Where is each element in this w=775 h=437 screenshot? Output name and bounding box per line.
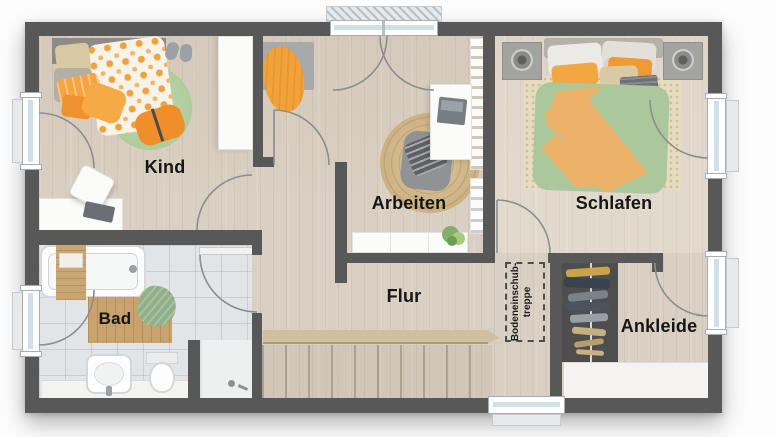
arbeiten-sideboard-divider-2 xyxy=(428,233,429,252)
window-schlafen-glass xyxy=(714,101,719,171)
arbeiten-laptop-screen xyxy=(441,100,464,112)
wall-bad-flur-upper xyxy=(252,245,262,255)
clothes-item xyxy=(570,313,608,323)
window-flur-glass xyxy=(493,402,560,407)
window-bad-cap-bottom xyxy=(20,351,42,357)
clothes-item xyxy=(566,266,610,277)
window-kind-glass xyxy=(28,100,33,162)
staircase-treads xyxy=(262,345,492,398)
wall-kind-arbeiten xyxy=(253,36,263,157)
schlafen-duvet xyxy=(532,82,670,195)
wall-schlafen-bottom-stub xyxy=(652,253,663,272)
wall-flur-ankleide xyxy=(550,263,562,398)
loft-hatch-label: Bodeneinschub- treppe xyxy=(510,260,540,344)
clothes-item xyxy=(576,349,604,356)
window-bad-cap-top xyxy=(20,285,42,291)
wall-nook-corner-stub xyxy=(253,157,274,167)
window-kind-cap-bottom xyxy=(20,164,42,170)
shower-fitting xyxy=(228,380,235,387)
window-flur-sill xyxy=(492,414,561,426)
window-schlafen-cap-bottom xyxy=(705,173,727,179)
room-label-bad: Bad xyxy=(88,309,142,331)
window-ankleide-cap-top xyxy=(705,251,727,257)
nightstand-lamp-left xyxy=(511,49,533,71)
wall-exterior-bottom xyxy=(25,398,722,413)
closet-rail xyxy=(590,262,592,362)
loft-hatch-label-line1: Bodeneinschub- xyxy=(510,260,522,344)
window-schlafen-cap-top xyxy=(705,93,727,99)
wall-schlafen-bottom xyxy=(548,253,663,263)
bad-sink-basin xyxy=(94,362,124,386)
window-arbeiten-divider xyxy=(382,21,385,35)
room-label-kind: Kind xyxy=(125,157,205,179)
window-kind-cap-top xyxy=(20,92,42,98)
wall-shower-stub xyxy=(188,340,200,398)
wall-arbeiten-bottom xyxy=(335,253,483,263)
bathtub-faucet xyxy=(129,265,137,273)
room-label-flur: Flur xyxy=(374,286,434,308)
clothes-item xyxy=(564,277,610,289)
bad-sink xyxy=(86,354,132,394)
wall-arbeiten-schlafen xyxy=(483,36,495,263)
kind-wardrobe xyxy=(218,36,253,150)
room-label-schlafen: Schlafen xyxy=(564,193,664,215)
wall-bad-flur-lower xyxy=(252,313,262,398)
wall-exterior-right xyxy=(708,22,722,413)
floorplan: Kind Arbeiten Schlafen Flur Bad Ankleide… xyxy=(0,0,775,437)
window-bad-glass xyxy=(28,293,33,349)
toilet-bowl xyxy=(149,362,175,393)
plant-leaf-2 xyxy=(447,236,457,246)
arbeiten-bookshelf xyxy=(470,38,484,170)
wall-kind-bad xyxy=(39,230,262,245)
arbeiten-sideboard-divider xyxy=(390,233,391,252)
ankleide-dresser xyxy=(564,362,708,398)
wall-arbeiten-nook xyxy=(335,162,347,283)
window-ankleide-glass xyxy=(714,259,719,327)
bathtub-caddy xyxy=(56,243,86,300)
room-label-ankleide: Ankleide xyxy=(609,316,709,338)
loft-hatch-label-line2: treppe xyxy=(522,260,534,344)
room-label-arbeiten: Arbeiten xyxy=(359,193,459,215)
caddy-towel xyxy=(59,253,83,268)
slippers-2 xyxy=(179,44,192,63)
staircase-balustrade xyxy=(263,330,488,344)
window-schlafen-sill xyxy=(726,100,739,172)
clothes-item xyxy=(574,338,605,348)
bad-sink-faucet xyxy=(106,386,112,396)
nightstand-lamp-right xyxy=(672,49,694,71)
clothes-item xyxy=(566,301,610,312)
window-ankleide-sill xyxy=(726,258,739,328)
arbeiten-bookshelf-2 xyxy=(470,178,484,234)
clothes-item xyxy=(572,327,606,337)
bad-door-leaf xyxy=(199,247,257,255)
clothes-item xyxy=(568,290,609,302)
ankleide-closet-recess xyxy=(562,262,618,362)
